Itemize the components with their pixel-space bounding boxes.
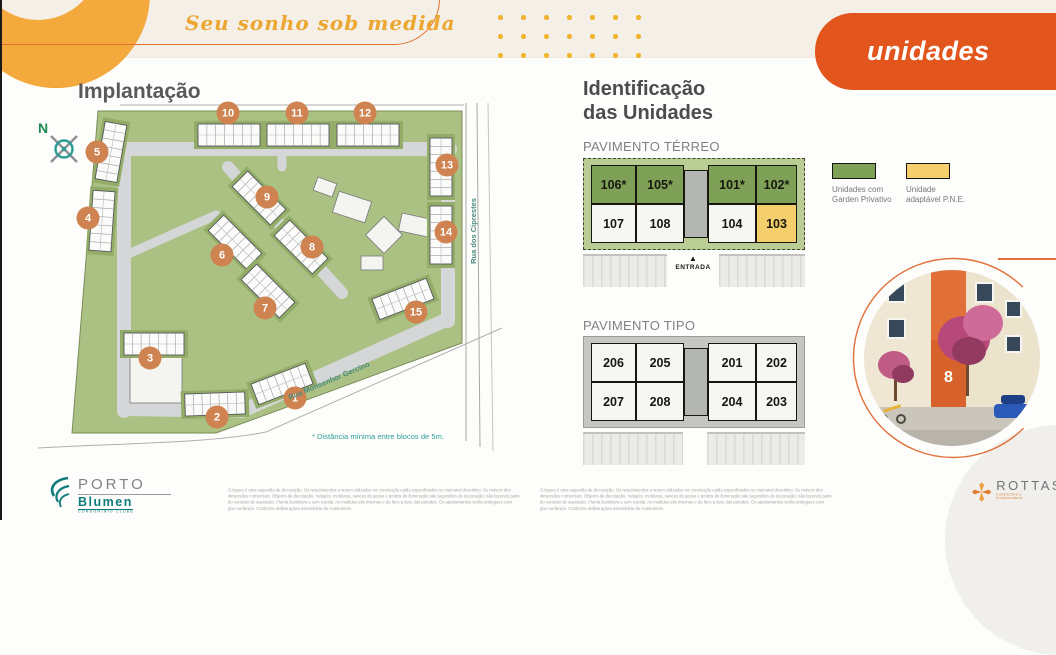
dot [590,53,595,58]
terreo-floorplan: 106*105*101*102*107108104103 ▲ ENTRADA [583,158,805,290]
dot [498,34,503,39]
unit-101: 101* [708,165,756,204]
dot [590,34,595,39]
svg-text:8: 8 [309,242,315,254]
dot [498,15,503,20]
disclaimer-text: O layout é uma sugestão de decoração. Os… [540,488,832,512]
svg-text:5: 5 [94,147,100,159]
unit-102: 102* [756,165,797,204]
legend-garden-label: Unidades com Garden Privativo [832,185,902,206]
residential-block [263,121,333,149]
legend-pne: Unidade adaptável P.N.E. [906,163,976,206]
terreo-label: PAVIMENTO TÉRREO [583,139,720,154]
svg-text:7: 7 [262,303,268,315]
dot [613,15,618,20]
svg-text:13: 13 [441,160,453,172]
dot [521,34,526,39]
dot [567,34,572,39]
dot [521,53,526,58]
svg-text:2: 2 [214,412,220,424]
unit-107: 107 [591,204,636,243]
block-marker-11: 11 [286,102,309,125]
block-marker-14: 14 [435,221,458,244]
dots-pattern [489,8,650,65]
block-marker-6: 6 [211,244,234,267]
svg-text:15: 15 [410,307,422,319]
svg-text:10: 10 [222,108,234,120]
tree-foliage [963,305,1003,341]
block-marker-15: 15 [405,301,428,324]
tagline: Seu sonho sob medida [185,11,456,35]
rottas-logo: ROTTAS Construtora e Incorporadora [972,478,1056,505]
unit-207: 207 [591,382,636,421]
porto-logo-line2: Blumen [78,495,133,510]
parking-strip [707,432,805,465]
photo-block-number: 8 [931,369,966,387]
tree-trunk [966,362,969,396]
block-marker-7: 7 [254,297,277,320]
dot [636,34,641,39]
block-marker-12: 12 [354,102,377,125]
window [1005,335,1023,353]
photo-ring-line [998,258,1056,260]
legend-pne-swatch [906,163,950,179]
svg-text:12: 12 [359,108,371,120]
bicycle-wheel [896,414,906,424]
unit-105: 105* [636,165,684,204]
dot [567,15,572,20]
parking-strip [583,254,667,287]
block-marker-4: 4 [77,207,100,230]
unit-106: 106* [591,165,636,204]
entrada-marker: ▲ ENTRADA [667,254,719,271]
svg-text:4: 4 [85,213,92,225]
tree-trunk [894,379,897,401]
disclaimer-text: O layout é uma sugestão de decoração. Os… [228,488,520,512]
dot [544,15,549,20]
unit-204: 204 [708,382,756,421]
unit-206: 206 [591,343,636,382]
svg-text:14: 14 [440,227,453,239]
rottas-logo-subtitle: Construtora e Incorporadora [996,493,1039,500]
dot [613,53,618,58]
window [887,282,906,303]
unit-104: 104 [708,204,756,243]
siteplan-map: 123456789101112131415 N Rua dos Cipreste… [20,95,520,457]
legend-pne-label: Unidade adaptável P.N.E. [906,185,976,206]
block-marker-8: 8 [301,236,324,259]
dot [521,15,526,20]
rottas-logo-name: ROTTAS [996,478,1056,493]
unit-205: 205 [636,343,684,382]
entrada-arrow-icon: ▲ [667,254,719,264]
residential-block [333,121,403,149]
street-label-right: Rua dos Ciprestes [469,198,478,264]
tipo-floorplan: 206205201202207208204203 [583,336,805,468]
block-marker-13: 13 [436,154,459,177]
elevator-core [684,348,708,416]
siteplan-note: * Distância mínima entre blocos de 5m. [312,432,444,441]
dot [498,53,503,58]
porto-leaf-icon [46,476,72,510]
car-roof [1001,395,1025,404]
dot [613,34,618,39]
elevator-core [684,170,708,238]
tipo-panel: 206205201202207208204203 [583,336,805,428]
unit-208: 208 [636,382,684,421]
svg-text:6: 6 [219,250,225,262]
car [994,404,1032,418]
porto-logo-line3: CONDOMÍNIO CLUBE [78,510,134,514]
block-marker-3: 3 [139,347,162,370]
dot [636,15,641,20]
block-marker-10: 10 [217,102,240,125]
residential-block [194,121,264,149]
dot [567,53,572,58]
tree-foliage [952,337,986,365]
block-marker-9: 9 [256,186,279,209]
photo-road [864,430,1040,446]
legend-garden-swatch [832,163,876,179]
entrada-label: ENTRADA [667,264,719,271]
parking-strip [583,432,683,465]
building-photo: 8 [864,270,1040,446]
unit-203: 203 [756,382,797,421]
identification-title: Identificação das Unidades [583,78,713,125]
unit-103: 103 [756,204,797,243]
unidades-banner: unidades [815,13,1056,90]
svg-text:3: 3 [147,353,153,365]
unit-108: 108 [636,204,684,243]
dot [544,53,549,58]
porto-logo-line1: PORTO [78,476,171,495]
compass-icon: N [38,120,77,162]
dot [590,15,595,20]
block-marker-2: 2 [206,406,229,429]
svg-text:11: 11 [291,108,303,120]
compass-north-label: N [38,120,48,136]
window [1005,300,1023,318]
window [887,318,906,339]
terreo-panel: 106*105*101*102*107108104103 [583,158,805,250]
tipo-label: PAVIMENTO TIPO [583,318,695,333]
unit-201: 201 [708,343,756,382]
block-marker-5: 5 [86,141,109,164]
rottas-pinwheel-icon [972,480,991,504]
legend-garden: Unidades com Garden Privativo [832,163,902,206]
porto-blumen-logo: PORTO Blumen CONDOMÍNIO CLUBE [46,476,171,516]
dot [544,34,549,39]
left-edge-bar [0,0,2,520]
svg-text:9: 9 [264,192,270,204]
window [975,282,994,303]
parking-strip [719,254,805,287]
dot [636,53,641,58]
unit-202: 202 [756,343,797,382]
